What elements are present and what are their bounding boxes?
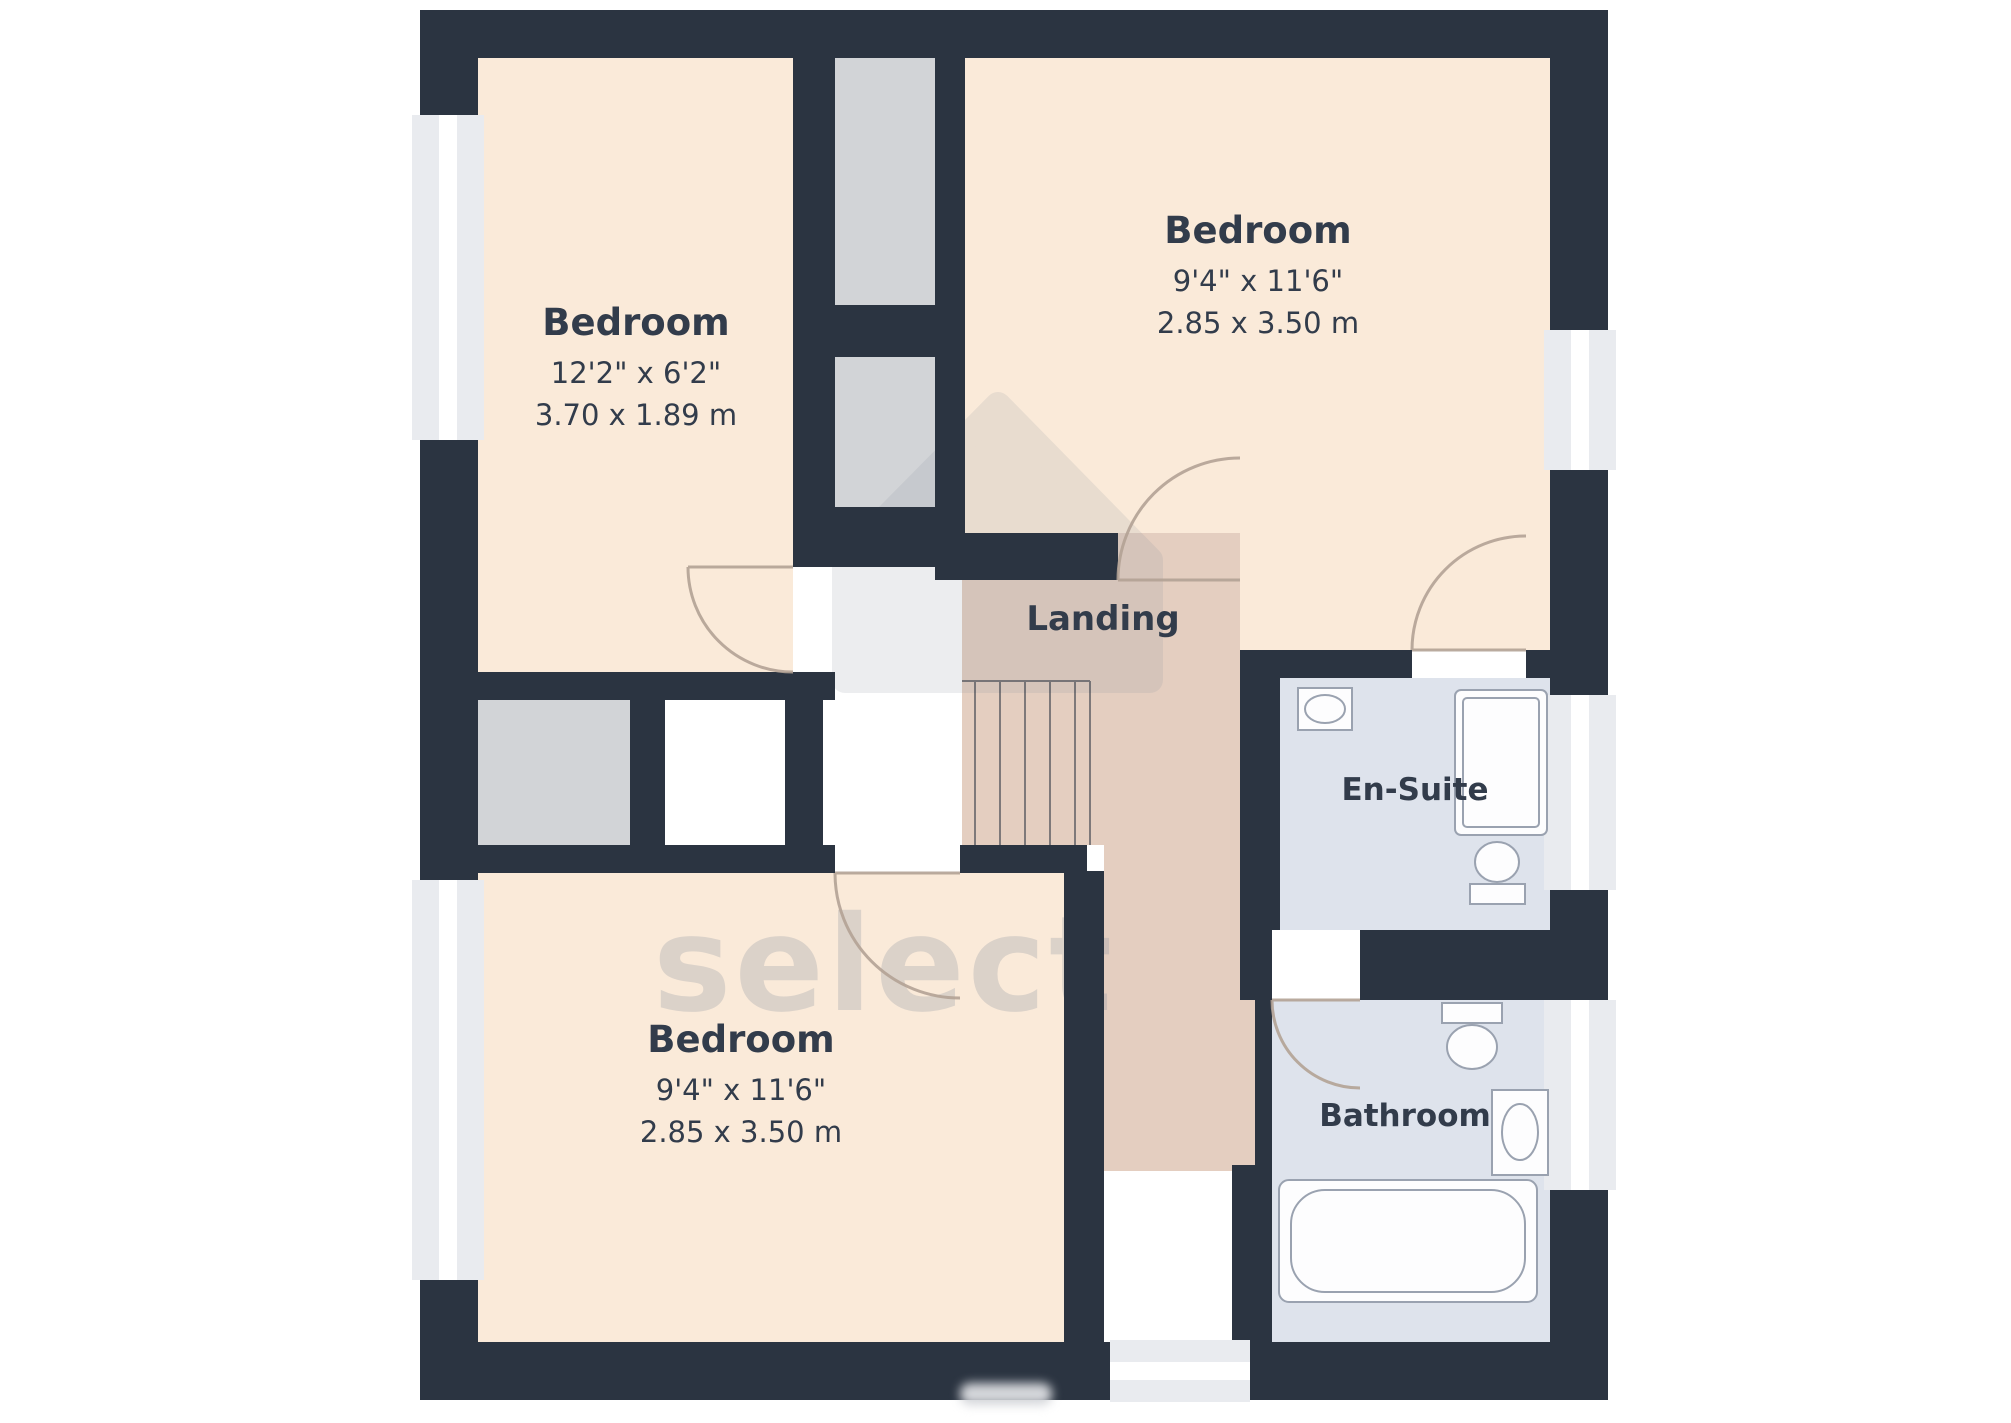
floorplan-page: select [0,0,2011,1423]
wall-closet-right [935,55,965,567]
bedroom-top-left-label: Bedroom [542,301,729,344]
wall-tr-bedroom-bottom [935,533,1118,580]
bathtub-icon [1279,1180,1537,1302]
closet-middle-white [665,692,785,845]
footer-watermark-smudge [960,1383,1052,1405]
floorplan-canvas: select [0,0,2011,1423]
bathroom-label: Bathroom [1319,1098,1491,1134]
toilet-tank-icon [1442,1003,1502,1023]
bedroom-top-right-size-m: 2.85 x 3.50 m [1157,306,1359,340]
wall-closet-row-divider-2 [785,692,823,845]
wall-bathroom-left-thin [1255,1000,1272,1165]
ensuite-toilet-icon [1475,842,1519,882]
window-pane [1571,695,1589,890]
wall-bottom-bedroom-top-left [420,845,835,873]
toilet-icon [1447,1025,1497,1069]
bedroom-bottom-size-m: 2.85 x 3.50 m [640,1115,842,1149]
wall-bottom-bedroom-top-right [960,845,1087,873]
bedroom-top-left-size-ft: 12'2" x 6'2" [551,356,721,390]
bedroom-top-right-label: Bedroom [1164,209,1351,252]
window-pane [1110,1362,1250,1380]
landing-label: Landing [1026,599,1179,639]
wall-bottom-bedroom-right [1064,871,1104,1342]
shower-icon [1455,690,1547,835]
outer-wall-top [420,10,1608,58]
bedroom-top-right-size-ft: 9'4" x 11'6" [1173,264,1343,298]
wall-ensuite-bathroom-left [1240,930,1272,1000]
bedroom-bottom-size-ft: 9'4" x 11'6" [656,1073,826,1107]
window-pane [439,880,457,1280]
wall-ensuite-bathroom-right [1360,930,1552,1000]
wall-tl-bedroom-bottom [420,672,835,700]
wall-ensuite-left [1240,650,1280,930]
window-pane [1571,1000,1589,1190]
wall-closet-row-divider-1 [630,692,665,845]
ensuite-label: En-Suite [1342,772,1489,808]
window-pane [439,115,457,440]
wall-ensuite-top-stub [1526,650,1552,678]
ensuite-toilet-tank-icon [1470,884,1525,904]
bedroom-top-right-floor-extension [1240,533,1552,650]
closet-top-1 [835,55,935,305]
wall-bathroom-left-lower [1232,1165,1272,1342]
bedroom-bottom-label: Bedroom [647,1018,834,1061]
closet-middle-gray [470,692,630,845]
window-pane [1571,330,1589,470]
bedroom-top-left-size-m: 3.70 x 1.89 m [535,398,737,432]
sink-icon [1492,1090,1548,1175]
